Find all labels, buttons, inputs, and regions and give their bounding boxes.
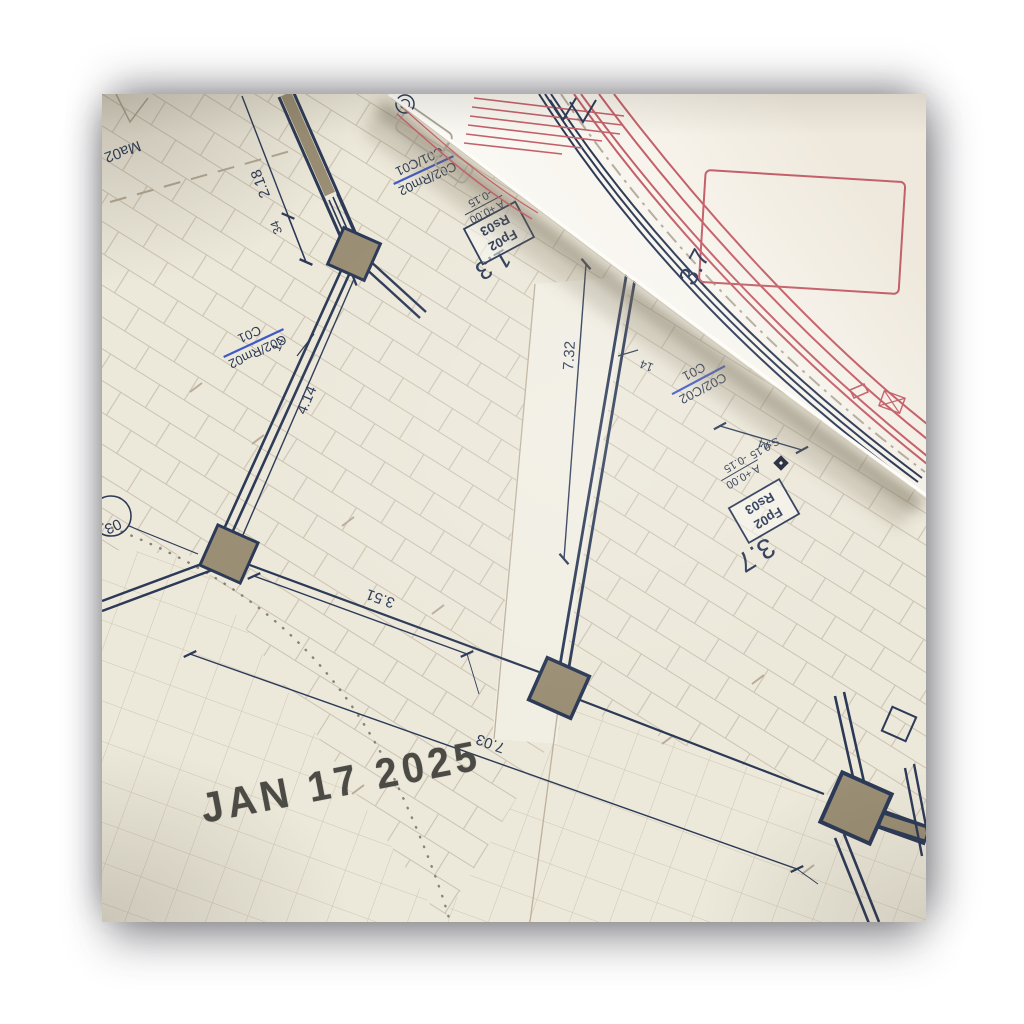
dim-7-32: 7.32 xyxy=(560,341,579,371)
blueprint-photo: 2.18 34 4.14 14 3.51 7.32 14 44 7.03 xyxy=(102,94,926,922)
photo-frame: 2.18 34 4.14 14 3.51 7.32 14 44 7.03 xyxy=(0,0,1024,1024)
